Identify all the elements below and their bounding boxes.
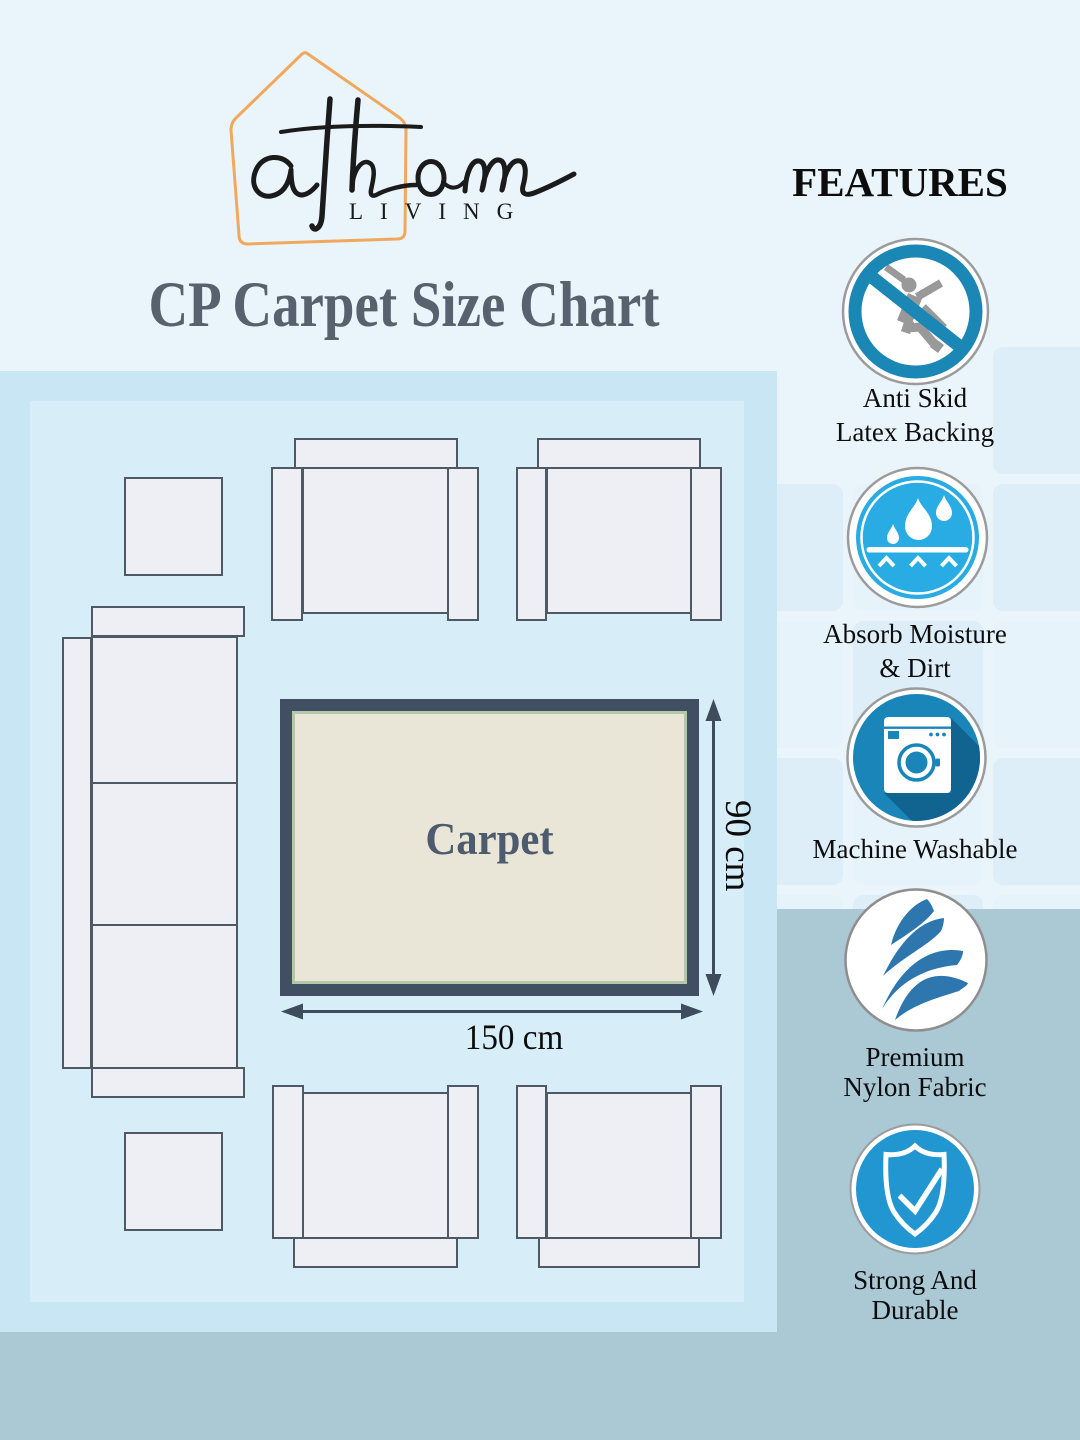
svg-text:LIVING: LIVING	[349, 199, 530, 224]
